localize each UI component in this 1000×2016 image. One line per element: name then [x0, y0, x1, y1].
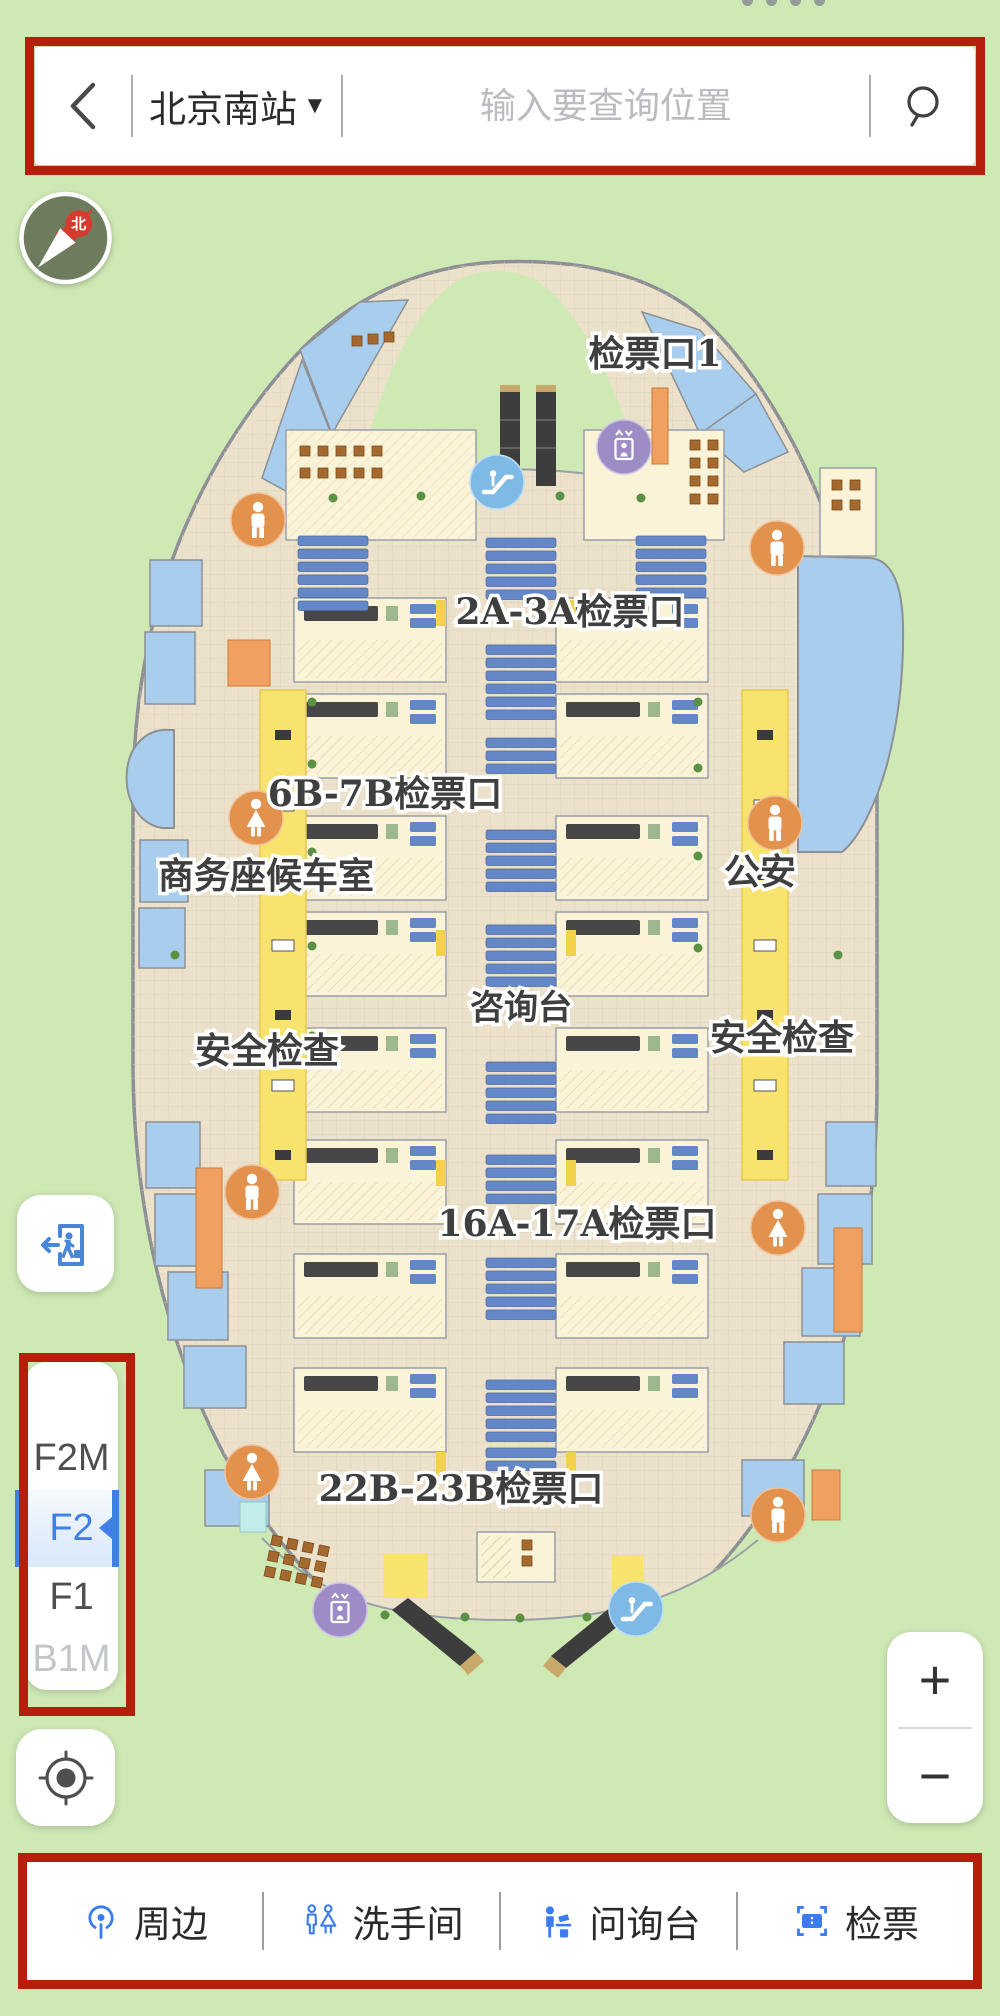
map-cyan-room: [240, 1502, 266, 1532]
compass-north-label: 北: [71, 216, 86, 233]
restroom-male-icon[interactable]: [231, 493, 285, 547]
annotation-box-search-bar: [25, 37, 985, 175]
escalator-icon[interactable]: [470, 455, 524, 509]
map-label-gate-6b7b: 6B-7B检票口: [268, 773, 503, 815]
restroom-male-icon[interactable]: [750, 521, 804, 575]
restroom-female-icon[interactable]: [751, 1201, 805, 1255]
app-screen: 检票口1 2A-3A检票口 6B-7B检票口 商务座候车室 公安 咨询台 安全检…: [0, 0, 1000, 2016]
map-label-gate-16a17a: 16A-17A检票口: [437, 1203, 716, 1245]
locate-me-button[interactable]: [16, 1729, 115, 1826]
locate-icon: [37, 1749, 95, 1807]
restroom-male-icon[interactable]: [751, 1488, 805, 1542]
zoom-out-button[interactable]: −: [887, 1729, 983, 1824]
escalator-icon[interactable]: [609, 1582, 663, 1636]
exit-icon: [36, 1214, 96, 1274]
zoom-controls: + −: [887, 1632, 983, 1823]
map-label-gate-2a3a: 2A-3A检票口: [456, 591, 685, 633]
map-label-police: 公安: [724, 851, 796, 893]
elevator-icon[interactable]: [597, 420, 651, 474]
annotation-box-floor-selector: [19, 1353, 135, 1716]
map-label-security-check-left: 安全检查: [195, 1030, 339, 1072]
zoom-in-button[interactable]: +: [887, 1632, 983, 1727]
map-label-information-desk: 咨询台: [470, 988, 572, 1028]
restroom-male-icon[interactable]: [225, 1165, 279, 1219]
restroom-male-icon[interactable]: [748, 796, 802, 850]
map-bottom-center-structure: [477, 1532, 555, 1582]
restroom-female-icon[interactable]: [225, 1445, 279, 1499]
map-label-gate-22b23b: 22B-23B检票口: [319, 1468, 604, 1510]
elevator-icon[interactable]: [313, 1583, 367, 1637]
map-label-security-check-right: 安全检查: [710, 1017, 854, 1059]
map-label-business-waiting-room: 商务座候车室: [158, 855, 374, 897]
map-label-gate1: 检票口1: [588, 333, 721, 375]
annotation-box-toolbar: [18, 1853, 982, 1989]
station-floor-map[interactable]: 检票口1 2A-3A检票口 6B-7B检票口 商务座候车室 公安 咨询台 安全检…: [0, 0, 1000, 2016]
map-right-wing-room: [798, 556, 903, 852]
compass-button[interactable]: 北: [17, 189, 114, 287]
exit-finder-button[interactable]: [17, 1195, 114, 1292]
